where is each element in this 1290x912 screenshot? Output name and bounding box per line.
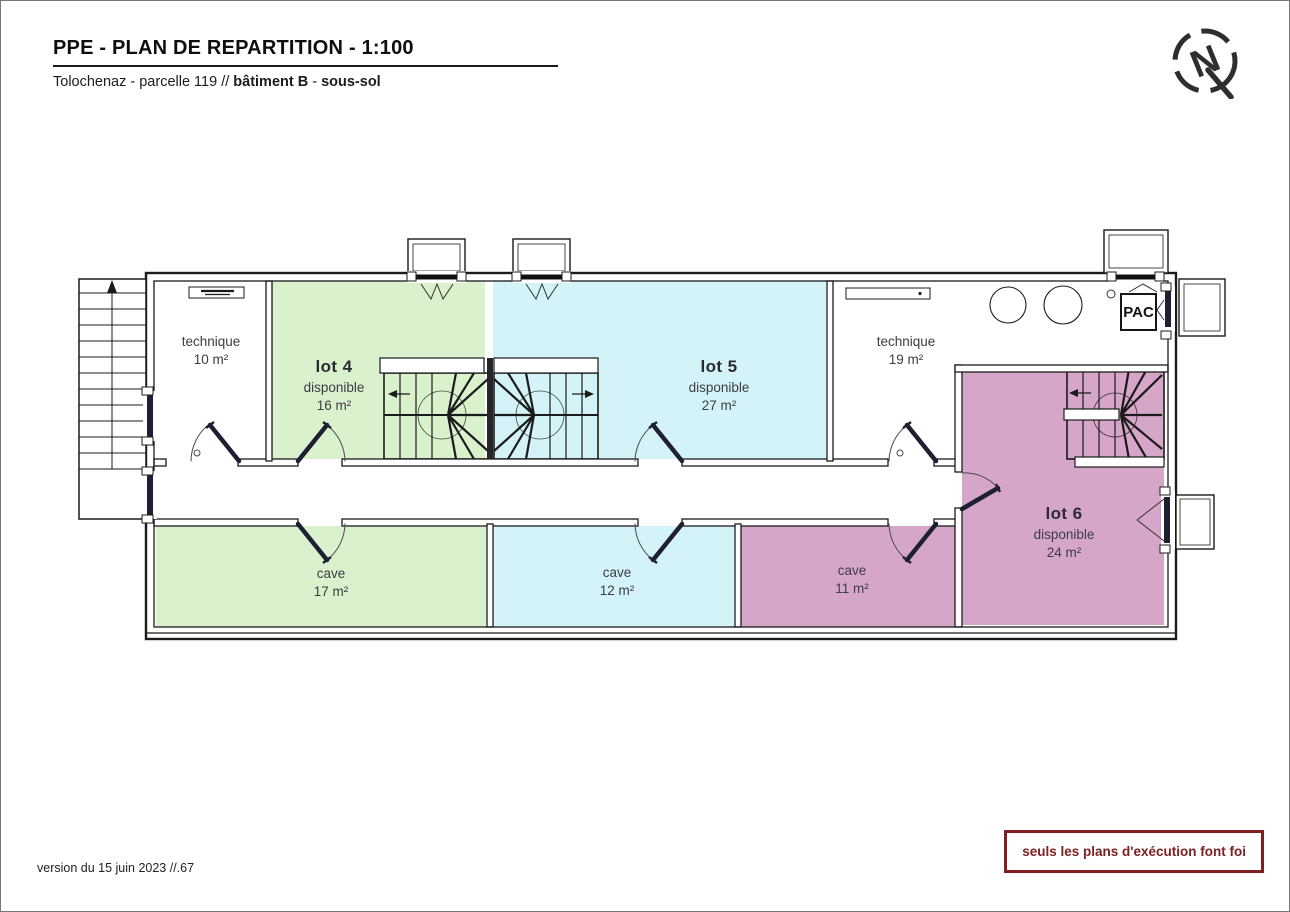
window-well-3 [1104,230,1168,283]
label-lot-6: lot 6 disponible 24 m² [991,504,1137,562]
room-name: technique [151,333,271,351]
room-area: 11 m² [787,580,917,598]
wall-cave17-cave12 [487,524,493,627]
exterior-stair [79,279,146,519]
label-technique-10: technique 10 m² [151,333,271,369]
window-well-4 [1161,279,1225,339]
label-lot-4: lot 4 disponible 16 m² [269,357,399,415]
room-area: 24 m² [991,544,1137,562]
wall-lot5-technique19 [827,281,833,461]
lot-status: disponible [269,379,399,397]
wall-lot6-west-lower [955,508,962,627]
lot-number: lot 4 [269,357,399,376]
room-area: 19 m² [846,351,966,369]
room-area: 10 m² [151,351,271,369]
label-cave-11: cave 11 m² [787,562,917,598]
stair-center-wall [487,358,493,461]
disclaimer-box: seuls les plans d'exécution font foi [1004,830,1264,873]
label-lot-5: lot 5 disponible 27 m² [639,357,799,415]
room-name: cave [266,565,396,583]
lot-number: lot 5 [639,357,799,376]
room-area: 16 m² [269,397,399,415]
wall-cave12-cave11 [735,524,741,627]
room-lot-6 [962,369,1164,625]
room-name: cave [552,564,682,582]
floor-plan-drawing [1,1,1290,912]
lot-status: disponible [639,379,799,397]
room-area: 17 m² [266,583,396,601]
plan-page: PPE - PLAN DE REPARTITION - 1:100 Toloch… [0,0,1290,912]
wall-lot6-north [955,365,1168,372]
electrical-panel-icon [846,288,930,299]
room-name: cave [787,562,917,580]
wall-lot6-west-upper [955,365,962,472]
heat-pump-box: PAC [1120,293,1157,331]
room-name: technique [846,333,966,351]
label-cave-17: cave 17 m² [266,565,396,601]
label-cave-12: cave 12 m² [552,564,682,600]
lot-number: lot 6 [991,504,1137,523]
room-technique-10 [156,281,266,459]
room-area: 12 m² [552,582,682,600]
electrical-panel-icon [189,287,244,298]
label-technique-19: technique 19 m² [846,333,966,369]
room-area: 27 m² [639,397,799,415]
lot-status: disponible [991,526,1137,544]
version-note: version du 15 juin 2023 //.67 [37,861,194,875]
